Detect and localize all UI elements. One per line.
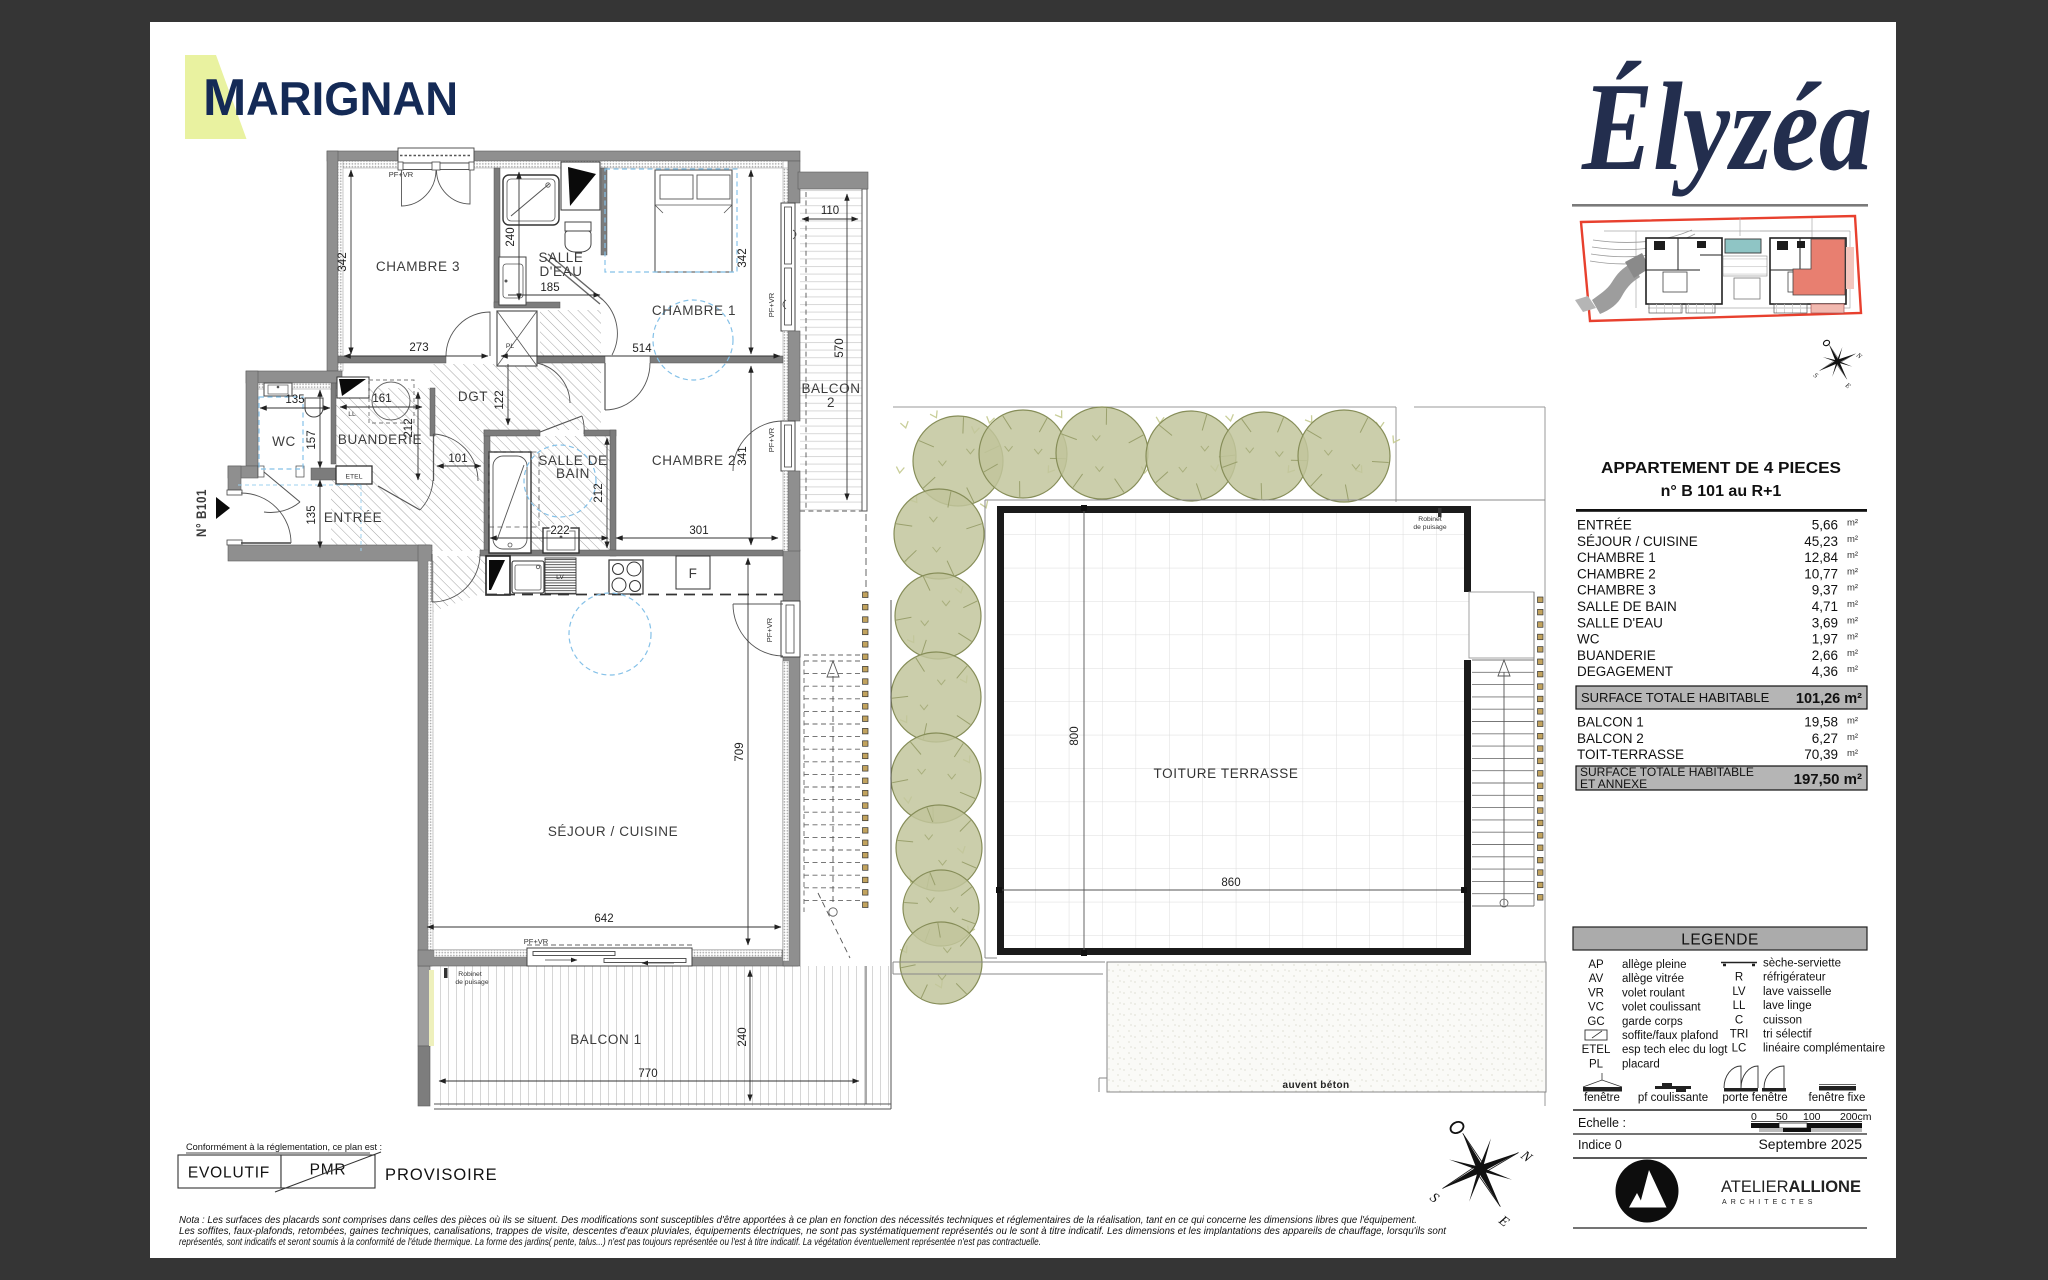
svg-text:tri sélectif: tri sélectif [1763,1029,1812,1041]
svg-text:allège pleine: allège pleine [1622,959,1687,971]
svg-text:F: F [689,566,698,581]
svg-text:Conformément à la réglementati: Conformément à la réglementation, ce pla… [186,1142,382,1152]
svg-text:212: 212 [593,483,605,502]
svg-text:m²: m² [1847,599,1858,610]
svg-text:BAIN: BAIN [556,466,590,481]
svg-text:m²: m² [1847,632,1858,643]
svg-text:représentés, sont indicatifs e: représentés, sont indicatifs et seront s… [179,1237,1041,1248]
svg-text:volet roulant: volet roulant [1622,987,1685,999]
svg-text:VR: VR [1588,987,1604,999]
svg-text:ARCHITECTES: ARCHITECTES [1722,1199,1817,1206]
svg-text:sèche-serviette: sèche-serviette [1763,958,1841,970]
svg-text:PF+VR: PF+VR [767,292,776,317]
svg-text:AV: AV [1589,973,1604,985]
svg-text:301: 301 [689,525,708,537]
svg-text:PF+VR: PF+VR [765,617,774,642]
svg-text:157: 157 [306,430,318,449]
svg-text:AP: AP [1588,959,1604,971]
svg-text:N° B101: N° B101 [194,489,209,537]
svg-text:cuisson: cuisson [1763,1014,1802,1026]
svg-text:12,84: 12,84 [1804,550,1838,565]
svg-text:DEGAGEMENT: DEGAGEMENT [1577,664,1673,679]
svg-text:CHAMBRE 2: CHAMBRE 2 [652,453,736,468]
svg-text:LV: LV [556,574,564,581]
svg-text:ETEL: ETEL [346,474,363,481]
svg-text:CHAMBRE 3: CHAMBRE 3 [1577,583,1656,598]
svg-text:m²: m² [1847,664,1858,675]
svg-text:110: 110 [821,205,839,217]
svg-text:m²: m² [1847,716,1858,727]
svg-text:222: 222 [550,525,569,537]
svg-text:122: 122 [494,390,506,409]
svg-text:LV: LV [1732,986,1746,998]
svg-text:WC: WC [272,434,296,449]
svg-text:C: C [1735,1014,1743,1026]
svg-text:273: 273 [409,342,428,354]
svg-text:réfrigérateur: réfrigérateur [1763,972,1826,984]
svg-text:PL: PL [506,343,515,350]
svg-text:linéaire complémentaire: linéaire complémentaire [1763,1043,1885,1055]
svg-text:m²: m² [1847,748,1858,759]
svg-text:CHAMBRE 2: CHAMBRE 2 [1577,566,1656,581]
svg-text:fenêtre: fenêtre [1584,1092,1620,1104]
svg-text:101,26 m²: 101,26 m² [1796,691,1862,707]
svg-text:860: 860 [1221,877,1240,889]
svg-text:ENTRÉE: ENTRÉE [1577,518,1632,533]
svg-text:Les soffites, faux-plafonds, r: Les soffites, faux-plafonds, retombées, … [179,1226,1447,1237]
svg-text:70,39: 70,39 [1804,747,1838,762]
svg-text:9,37: 9,37 [1812,583,1838,598]
svg-text:PMR: PMR [310,1162,347,1179]
svg-text:D'EAU: D'EAU [539,264,582,279]
svg-text:800: 800 [1069,726,1081,745]
svg-text:Septembre 2025: Septembre 2025 [1758,1136,1862,1152]
svg-text:lave linge: lave linge [1763,1000,1812,1012]
svg-text:4,36: 4,36 [1812,664,1838,679]
svg-text:SALLE: SALLE [538,250,583,265]
svg-text:BALCON 2: BALCON 2 [1577,731,1644,746]
svg-text:5,66: 5,66 [1812,518,1838,533]
svg-text:PL: PL [1589,1058,1604,1070]
svg-text:642: 642 [594,913,613,925]
svg-text:n° B 101 au R+1: n° B 101 au R+1 [1661,483,1782,500]
svg-text:m²: m² [1847,550,1858,561]
svg-text:514: 514 [632,343,652,355]
svg-text:fenêtre fixe: fenêtre fixe [1809,1092,1866,1104]
svg-text:TRI: TRI [1730,1029,1749,1041]
svg-text:240: 240 [505,227,517,246]
svg-text:esp tech elec du logt: esp tech elec du logt [1622,1044,1728,1056]
svg-text:auvent béton: auvent béton [1282,1080,1349,1091]
svg-text:ETEL: ETEL [1582,1044,1611,1056]
svg-text:M: M [203,69,245,127]
svg-text:161: 161 [372,393,391,405]
svg-text:185: 185 [540,282,559,294]
svg-text:EVOLUTIF: EVOLUTIF [188,1165,270,1182]
svg-text:volet coulissant: volet coulissant [1622,1002,1701,1014]
svg-text:1,97: 1,97 [1812,632,1838,647]
svg-text:Robinet: Robinet [458,971,482,978]
svg-text:LL: LL [1733,1000,1746,1012]
svg-text:341: 341 [737,446,749,465]
svg-text:709: 709 [734,742,746,761]
svg-text:CHAMBRE 1: CHAMBRE 1 [652,303,736,318]
svg-text:Robinet: Robinet [1418,516,1442,523]
svg-text:VC: VC [1588,1002,1604,1014]
svg-text:pf coulissante: pf coulissante [1638,1092,1708,1104]
svg-text:LEGENDE: LEGENDE [1681,932,1759,949]
svg-text:197,50 m²: 197,50 m² [1794,771,1862,788]
svg-text:m²: m² [1847,648,1858,659]
svg-text:240: 240 [737,1027,749,1046]
svg-text:19,58: 19,58 [1804,715,1838,730]
svg-text:ENTRÉE: ENTRÉE [324,510,382,525]
svg-text:BALCON 1: BALCON 1 [1577,715,1644,730]
svg-text:CHAMBRE 1: CHAMBRE 1 [1577,550,1656,565]
svg-text:soffite/faux plafond: soffite/faux plafond [1622,1030,1718,1042]
svg-text:SALLE D'EAU: SALLE D'EAU [1577,615,1663,630]
svg-text:GC: GC [1587,1016,1604,1028]
svg-text:SÉJOUR / CUISINE: SÉJOUR / CUISINE [1577,534,1698,549]
svg-text:BALCON 1: BALCON 1 [570,1032,642,1047]
svg-text:Élyzéa: Élyzéa [1581,58,1872,197]
svg-text:2: 2 [827,395,835,410]
svg-text:TOITURE TERRASSE: TOITURE TERRASSE [1154,766,1299,781]
svg-text:APPARTEMENT DE 4 PIECES: APPARTEMENT DE 4 PIECES [1601,460,1841,477]
svg-text:342: 342 [737,248,749,267]
svg-text:m²: m² [1847,583,1858,594]
svg-text:BALCON: BALCON [801,381,860,396]
svg-text:135: 135 [285,394,304,406]
svg-text:CHAMBRE 3: CHAMBRE 3 [376,259,460,274]
svg-text:101: 101 [448,453,467,465]
svg-text:LC: LC [1732,1043,1747,1055]
svg-text:Echelle :: Echelle : [1578,1116,1626,1130]
svg-text:WC: WC [1577,632,1600,647]
svg-text:m²: m² [1847,534,1858,545]
svg-text:lave vaisselle: lave vaisselle [1763,986,1831,998]
svg-text:4,71: 4,71 [1812,599,1838,614]
svg-text:135: 135 [306,505,318,524]
svg-text:placard: placard [1622,1058,1660,1070]
svg-text:ARIGNAN: ARIGNAN [246,72,458,125]
svg-text:ATELIERALLIONE: ATELIERALLIONE [1721,1178,1861,1196]
svg-text:Indice 0: Indice 0 [1578,1138,1622,1152]
svg-text:m²: m² [1847,518,1858,529]
svg-text:de puisage: de puisage [455,979,488,986]
svg-text:LL: LL [348,411,356,418]
svg-text:2,66: 2,66 [1812,648,1838,663]
svg-text:SURFACE TOTALE HABITABLE: SURFACE TOTALE HABITABLE [1581,690,1770,705]
svg-text:SALLE DE BAIN: SALLE DE BAIN [1577,599,1677,614]
svg-text:PF+VR: PF+VR [767,427,776,452]
svg-text:de puisage: de puisage [1413,524,1446,531]
svg-text:BUANDERIE: BUANDERIE [338,432,422,447]
svg-text:DGT: DGT [458,389,488,404]
svg-text:570: 570 [834,338,846,357]
svg-text:342: 342 [337,252,349,271]
svg-text:m²: m² [1847,732,1858,743]
svg-text:PROVISOIRE: PROVISOIRE [385,1166,498,1184]
svg-text:Nota : Les surfaces des placar: Nota : Les surfaces des placards sont co… [179,1215,1417,1226]
svg-text:770: 770 [638,1068,657,1080]
svg-text:3,69: 3,69 [1812,615,1838,630]
svg-text:m²: m² [1847,566,1858,577]
svg-text:m²: m² [1847,615,1858,626]
svg-text:45,23: 45,23 [1804,534,1838,549]
svg-text:SÉJOUR / CUISINE: SÉJOUR / CUISINE [548,824,678,839]
svg-text:ET ANNEXE: ET ANNEXE [1580,777,1647,791]
svg-text:allège vitrée: allège vitrée [1622,973,1684,985]
svg-text:6,27: 6,27 [1812,731,1838,746]
svg-text:TOIT-TERRASSE: TOIT-TERRASSE [1577,747,1684,762]
svg-text:R: R [1735,972,1743,984]
svg-text:10,77: 10,77 [1804,566,1838,581]
svg-text:garde corps: garde corps [1622,1016,1683,1028]
svg-text:porte fenêtre: porte fenêtre [1722,1092,1787,1104]
svg-text:BUANDERIE: BUANDERIE [1577,648,1656,663]
